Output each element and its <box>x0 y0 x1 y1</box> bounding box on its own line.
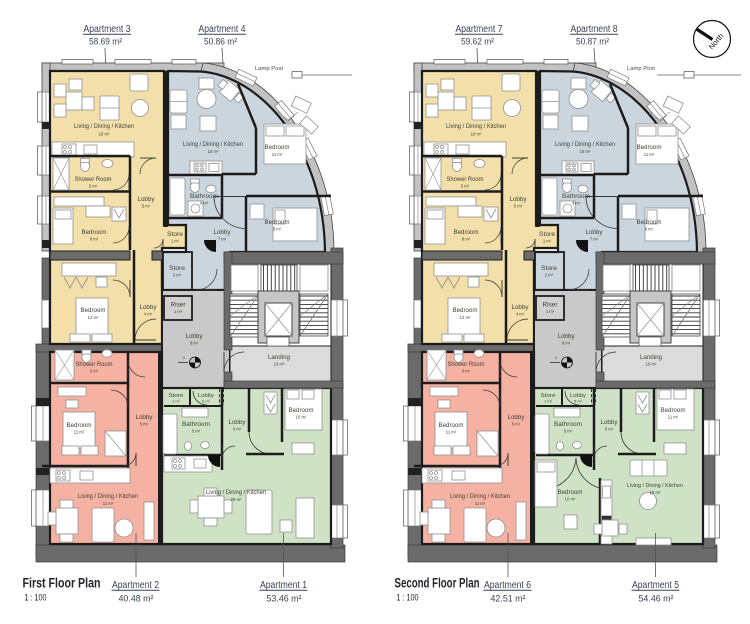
svg-text:Apartment 1: Apartment 1 <box>260 580 307 591</box>
svg-text:15 m²: 15 m² <box>208 149 219 154</box>
svg-text:16 m²: 16 m² <box>580 149 591 154</box>
svg-text:Bedroom: Bedroom <box>81 308 106 314</box>
svg-text:Landing: Landing <box>268 355 290 361</box>
svg-text:Bedroom: Bedroom <box>637 145 662 151</box>
svg-text:Bedroom: Bedroom <box>265 145 290 151</box>
svg-text:10 m²: 10 m² <box>565 497 576 502</box>
svg-text:Shower Room: Shower Room <box>76 362 113 368</box>
svg-text:1 : 100: 1 : 100 <box>25 593 47 603</box>
svg-text:11 m²: 11 m² <box>74 430 85 435</box>
svg-text:50.86 m²: 50.86 m² <box>204 37 237 48</box>
svg-text:Riser: Riser <box>171 303 186 309</box>
svg-text:Bedroom: Bedroom <box>453 308 478 314</box>
svg-text:Bedroom: Bedroom <box>439 423 464 429</box>
svg-text:42.51 m²: 42.51 m² <box>491 594 526 605</box>
svg-text:29 m²: 29 m² <box>231 497 242 502</box>
svg-text:0: 0 <box>183 356 185 360</box>
svg-text:Bathroom: Bathroom <box>190 194 218 200</box>
svg-text:Lobby: Lobby <box>512 305 529 311</box>
svg-text:10 m²: 10 m² <box>296 415 307 420</box>
svg-text:8 m²: 8 m² <box>273 227 282 232</box>
svg-text:Apartment 5: Apartment 5 <box>632 580 679 591</box>
svg-text:5 m²: 5 m² <box>192 429 201 434</box>
svg-text:5 m²: 5 m² <box>514 204 523 209</box>
svg-text:Living / Dining / Kitchen: Living / Dining / Kitchen <box>555 142 615 148</box>
svg-text:Lobby: Lobby <box>186 334 203 340</box>
svg-text:50.87 m²: 50.87 m² <box>576 37 609 48</box>
svg-text:Lobby: Lobby <box>229 420 246 426</box>
svg-text:0: 0 <box>555 356 557 360</box>
svg-text:5 m²: 5 m² <box>142 204 151 209</box>
svg-text:Lobby: Lobby <box>558 334 575 340</box>
svg-text:Bathroom: Bathroom <box>562 194 590 200</box>
svg-text:Shower Room: Shower Room <box>75 177 112 183</box>
svg-text:6 m²: 6 m² <box>233 427 242 432</box>
svg-text:Bedroom: Bedroom <box>265 220 290 226</box>
svg-text:Apartment 3: Apartment 3 <box>84 24 131 35</box>
svg-text:Living / Dining / Kitchen: Living / Dining / Kitchen <box>183 142 243 148</box>
svg-text:Store: Store <box>167 232 184 238</box>
svg-text:40.48 m²: 40.48 m² <box>119 594 154 605</box>
svg-text:2 m²: 2 m² <box>173 273 182 278</box>
svg-text:5 m²: 5 m² <box>564 429 573 434</box>
svg-text:Living / Dining / Kitchen: Living / Dining / Kitchen <box>78 494 138 500</box>
svg-text:1 m²: 1 m² <box>171 239 180 244</box>
svg-text:Store: Store <box>169 266 186 272</box>
svg-text:5 m²: 5 m² <box>90 369 99 374</box>
svg-text:18 m²: 18 m² <box>650 490 661 495</box>
svg-text:Lobby: Lobby <box>140 305 157 311</box>
svg-text:Lobby: Lobby <box>138 197 155 203</box>
svg-text:5 m²: 5 m² <box>462 369 471 374</box>
svg-text:Apartment 8: Apartment 8 <box>571 24 618 35</box>
svg-text:1 : 100: 1 : 100 <box>397 593 419 603</box>
svg-text:11 m²: 11 m² <box>272 152 283 157</box>
svg-text:12 m²: 12 m² <box>88 315 99 320</box>
svg-text:Lobby: Lobby <box>510 197 527 203</box>
svg-text:12 m²: 12 m² <box>460 315 471 320</box>
svg-text:Bedroom: Bedroom <box>661 408 686 414</box>
svg-text:Living / Dining / Kitchen: Living / Dining / Kitchen <box>74 124 134 130</box>
svg-text:53.46 m²: 53.46 m² <box>267 594 302 605</box>
svg-text:Bathroom: Bathroom <box>554 422 582 428</box>
svg-text:Lobby: Lobby <box>586 230 603 236</box>
svg-text:Living / Dining / Kitchen: Living / Dining / Kitchen <box>206 490 266 496</box>
svg-text:Living / Dining / Kitchen: Living / Dining / Kitchen <box>627 483 683 489</box>
svg-text:1 m²: 1 m² <box>543 239 552 244</box>
svg-text:7 m²: 7 m² <box>590 237 599 242</box>
svg-text:18 m²: 18 m² <box>471 132 482 137</box>
svg-text:11 m²: 11 m² <box>644 152 655 157</box>
svg-text:8 m²: 8 m² <box>645 227 654 232</box>
svg-text:19 m²: 19 m² <box>646 362 657 367</box>
svg-text:1 m²: 1 m² <box>544 399 553 404</box>
svg-text:54.46 m²: 54.46 m² <box>639 594 674 605</box>
svg-text:Bedroom: Bedroom <box>558 490 583 496</box>
svg-text:11 m²: 11 m² <box>446 430 457 435</box>
svg-text:Bedroom: Bedroom <box>289 408 314 414</box>
svg-text:First Floor Plan: First Floor Plan <box>23 576 101 591</box>
svg-text:Living / Dining / Kitchen: Living / Dining / Kitchen <box>446 124 506 130</box>
svg-text:19 m²: 19 m² <box>274 362 285 367</box>
svg-text:Store: Store <box>539 232 556 238</box>
svg-text:4 m²: 4 m² <box>516 312 525 317</box>
svg-text:4 m²: 4 m² <box>572 201 581 206</box>
svg-text:5 m²: 5 m² <box>140 422 149 427</box>
svg-text:Bedroom: Bedroom <box>637 220 662 226</box>
svg-text:18 m²: 18 m² <box>99 132 110 137</box>
svg-text:8 m²: 8 m² <box>190 341 199 346</box>
svg-text:Bedroom: Bedroom <box>67 423 92 429</box>
svg-text:Bathroom: Bathroom <box>182 422 210 428</box>
svg-text:6 m²: 6 m² <box>605 427 614 432</box>
svg-text:5 m²: 5 m² <box>574 399 583 404</box>
svg-text:Bedroom: Bedroom <box>82 230 107 236</box>
svg-text:Lamp Post: Lamp Post <box>255 66 283 72</box>
svg-text:Lobby: Lobby <box>601 420 618 426</box>
svg-text:11 m²: 11 m² <box>475 501 486 506</box>
svg-text:5 m²: 5 m² <box>202 399 211 404</box>
svg-text:Living / Dining / Kitchen: Living / Dining / Kitchen <box>450 494 510 500</box>
svg-text:Lamp Post: Lamp Post <box>627 66 655 72</box>
svg-text:Lobby: Lobby <box>214 230 231 236</box>
svg-text:5 m²: 5 m² <box>461 184 470 189</box>
svg-text:Riser: Riser <box>543 303 558 309</box>
svg-text:8 m²: 8 m² <box>462 237 471 242</box>
svg-text:58.69 m²: 58.69 m² <box>89 37 122 48</box>
svg-text:Apartment 7: Apartment 7 <box>456 24 503 35</box>
svg-text:7 m²: 7 m² <box>218 237 227 242</box>
svg-text:8 m²: 8 m² <box>90 237 99 242</box>
svg-text:Apartment 6: Apartment 6 <box>484 580 531 591</box>
svg-text:1 m²: 1 m² <box>172 399 181 404</box>
svg-text:59.62 m²: 59.62 m² <box>461 37 494 48</box>
svg-text:1 m²: 1 m² <box>174 309 183 314</box>
svg-text:4 m²: 4 m² <box>200 201 209 206</box>
svg-text:11 m²: 11 m² <box>668 415 679 420</box>
svg-text:4 m²: 4 m² <box>144 312 153 317</box>
svg-text:5 m²: 5 m² <box>512 422 521 427</box>
svg-text:Apartment 4: Apartment 4 <box>199 24 246 35</box>
svg-text:5 m²: 5 m² <box>89 184 98 189</box>
svg-text:Landing: Landing <box>640 355 662 361</box>
svg-text:Store: Store <box>541 266 558 272</box>
svg-text:2 m²: 2 m² <box>545 273 554 278</box>
svg-text:Shower Room: Shower Room <box>447 177 484 183</box>
svg-text:Lobby: Lobby <box>508 415 525 421</box>
svg-text:8 m²: 8 m² <box>562 341 571 346</box>
svg-text:Lobby: Lobby <box>136 415 153 421</box>
svg-text:11 m²: 11 m² <box>103 501 114 506</box>
svg-text:Apartment 2: Apartment 2 <box>112 580 159 591</box>
svg-text:1 m²: 1 m² <box>546 309 555 314</box>
svg-text:Bedroom: Bedroom <box>454 230 479 236</box>
svg-text:Shower Room: Shower Room <box>448 362 485 368</box>
svg-text:Second Floor Plan: Second Floor Plan <box>395 576 480 591</box>
